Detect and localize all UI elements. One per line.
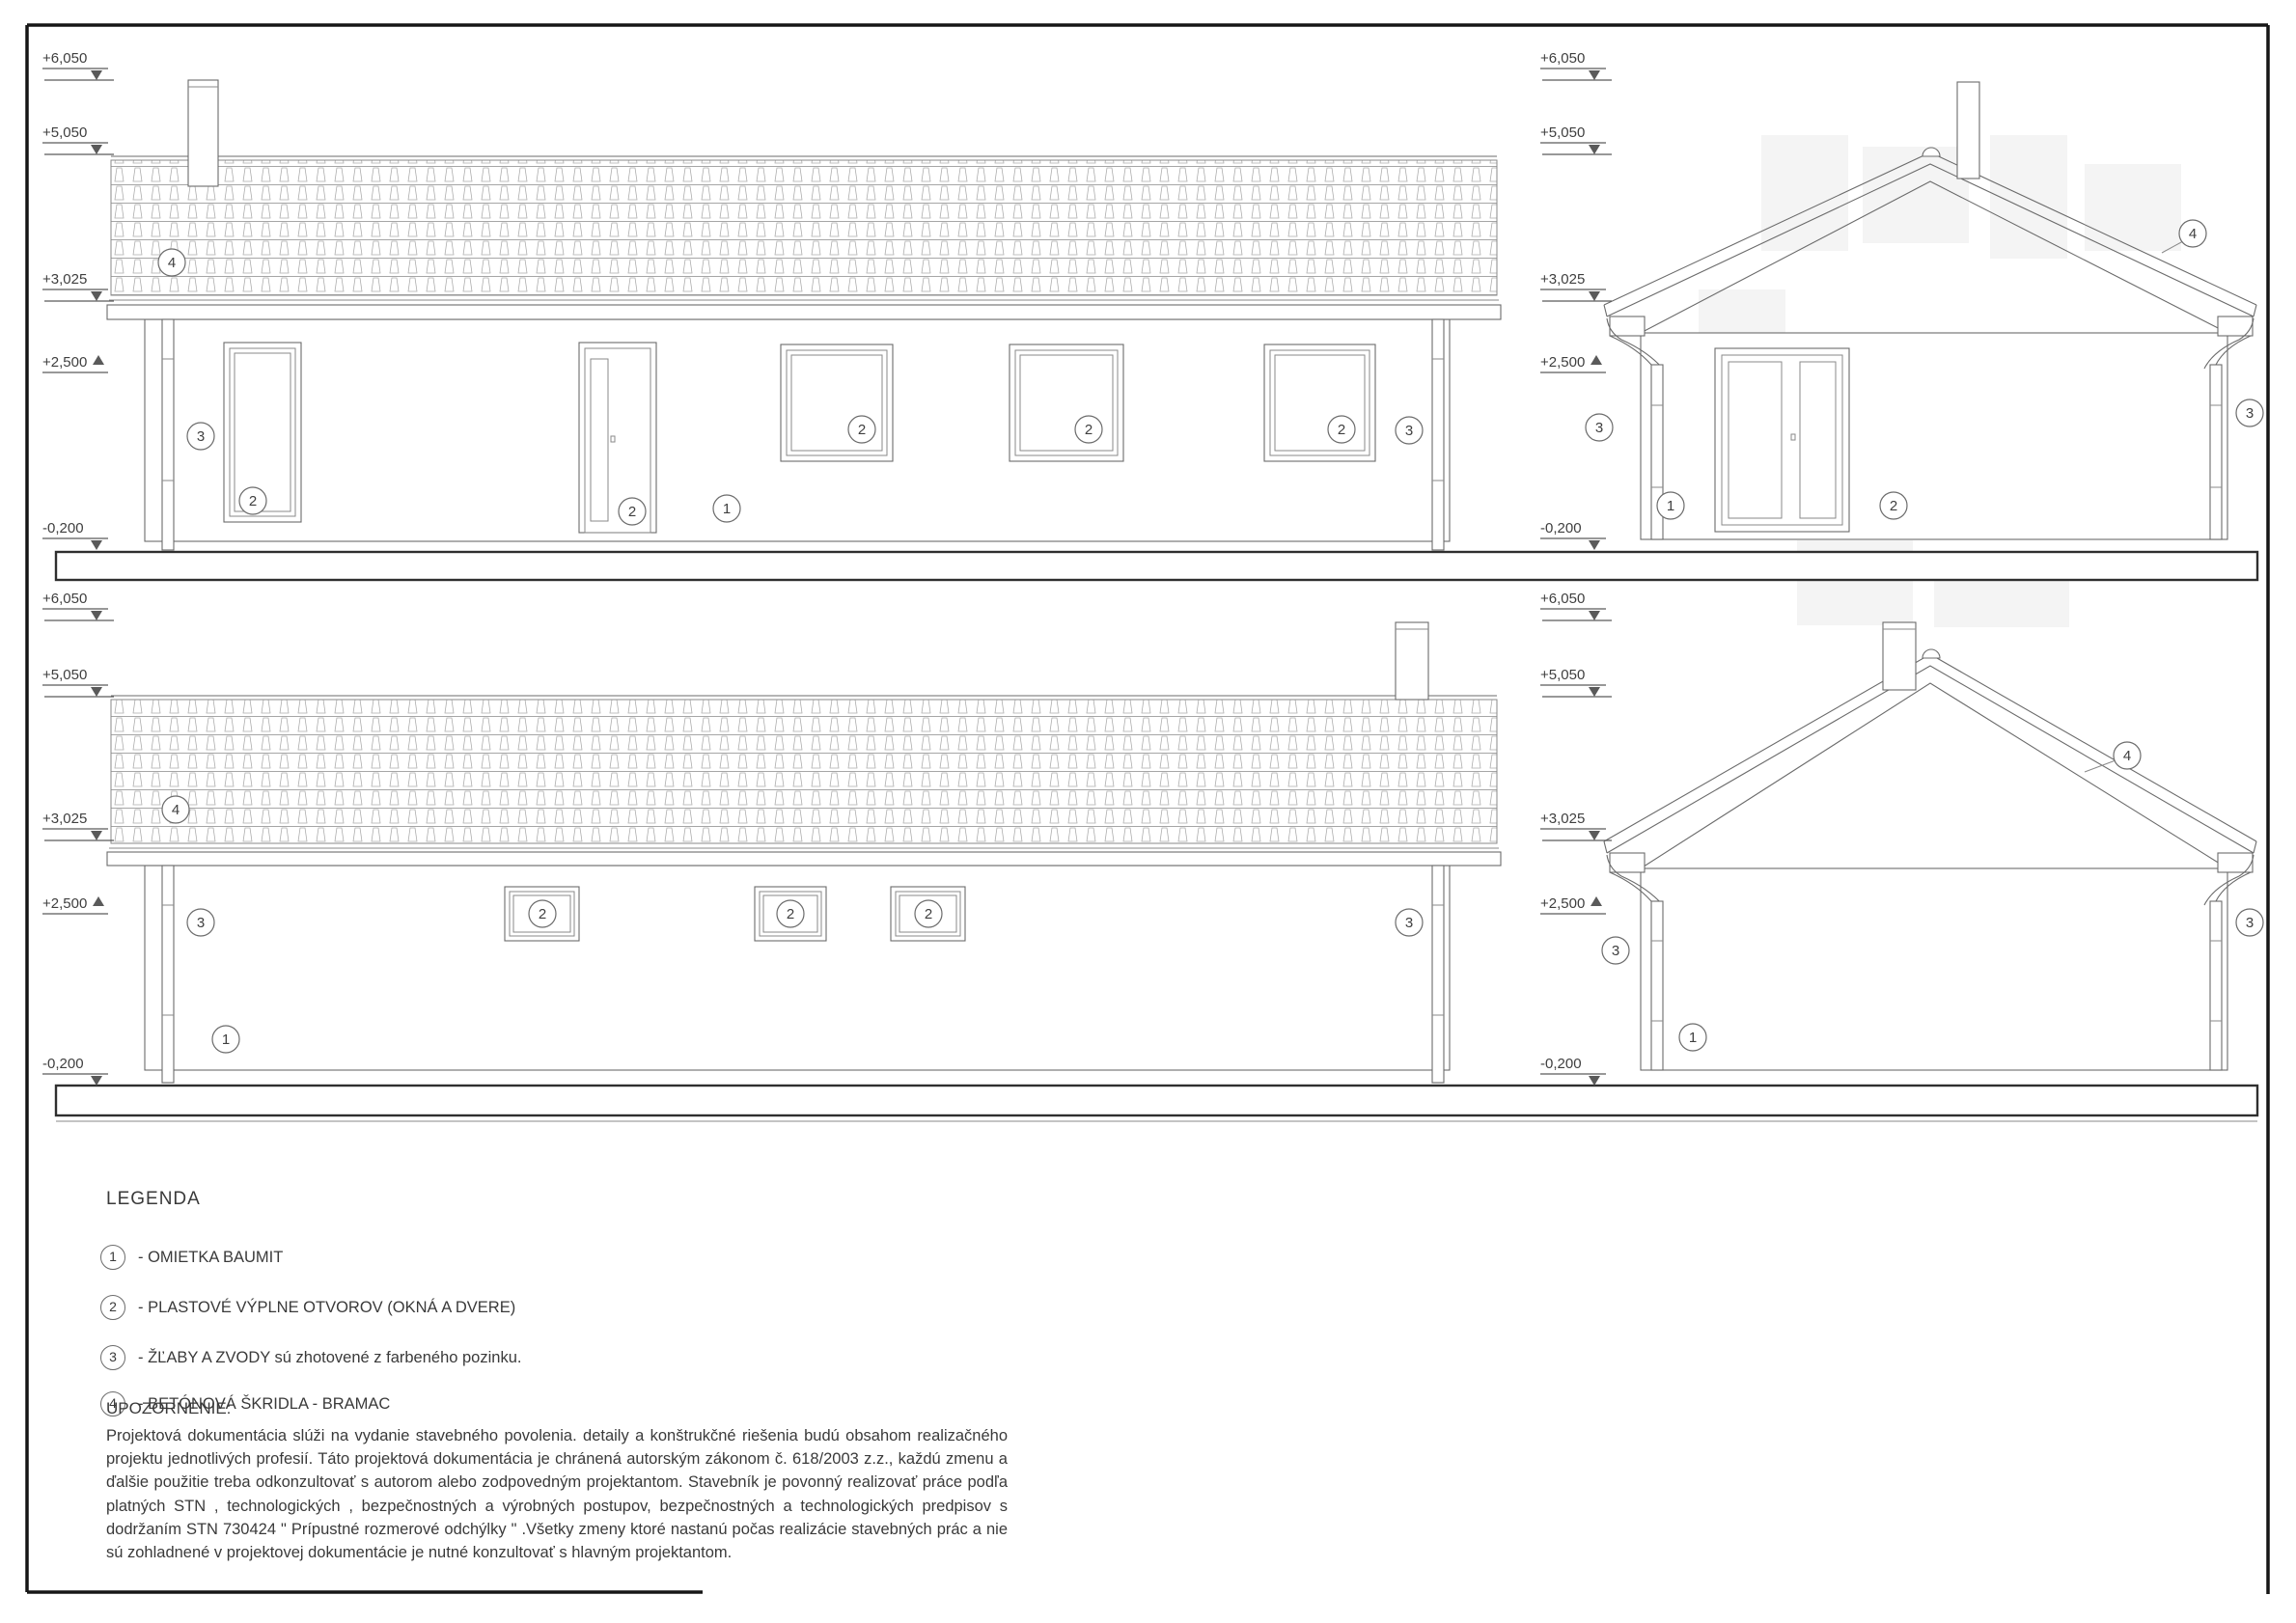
level-mark: +3,025 <box>1540 271 1612 301</box>
level-mark: -0,200 <box>42 1056 108 1086</box>
marker-roof-tiles: 4 <box>2114 742 2141 769</box>
level-mark: +5,050 <box>42 667 114 697</box>
marker-gutter: 3 <box>2236 909 2263 936</box>
marker-roof-tiles: 4 <box>162 796 189 823</box>
marker-plaster: 1 <box>713 495 740 522</box>
roof <box>107 156 1501 319</box>
marker-window: 2 <box>239 487 266 514</box>
level-mark: -0,200 <box>42 520 108 550</box>
svg-text:1: 1 <box>723 501 731 517</box>
legend-item-label: - OMIETKA BAUMIT <box>138 1249 283 1267</box>
level-mark: +3,025 <box>42 811 114 840</box>
level-mark: +6,050 <box>42 50 114 80</box>
downpipe-left <box>162 866 174 1083</box>
marker-plaster: 1 <box>1679 1024 1706 1051</box>
svg-text:4: 4 <box>2123 748 2131 764</box>
svg-text:1: 1 <box>1667 498 1674 514</box>
level-mark: +5,050 <box>42 124 114 154</box>
level-mark: +2,500 <box>42 895 108 914</box>
svg-text:2: 2 <box>787 906 794 922</box>
svg-text:2: 2 <box>539 906 546 922</box>
level-mark: +6,050 <box>1540 591 1612 620</box>
svg-text:+5,050: +5,050 <box>42 667 87 683</box>
svg-text:1: 1 <box>222 1032 230 1048</box>
marker-plaster: 1 <box>212 1026 239 1053</box>
legend-marker-3: 3 <box>100 1345 125 1370</box>
svg-text:+6,050: +6,050 <box>1540 591 1585 607</box>
downpipe-left <box>162 319 174 550</box>
level-mark: +2,500 <box>1540 895 1606 914</box>
wall <box>1641 868 2227 1070</box>
marker-gutter: 3 <box>1396 909 1423 936</box>
drawing-sheet: +6,050 +5,050 +3,025 +2,500 -0,200 +6,05… <box>0 0 2296 1623</box>
gable-roof <box>1604 649 2256 872</box>
chimney <box>188 80 218 186</box>
svg-text:+5,050: +5,050 <box>1540 667 1585 683</box>
marker-window: 2 <box>1880 492 1907 519</box>
svg-text:4: 4 <box>168 255 176 271</box>
svg-text:3: 3 <box>197 428 205 445</box>
terrace-door-window <box>1715 348 1849 532</box>
legend-marker-1: 1 <box>100 1245 125 1270</box>
chimney <box>1957 82 1979 179</box>
level-mark: -0,200 <box>1540 520 1606 550</box>
svg-text:2: 2 <box>1338 422 1345 438</box>
legend-item: 2 - PLASTOVÉ VÝPLNE OTVOROV (OKNÁ A DVER… <box>100 1295 515 1320</box>
svg-text:+3,025: +3,025 <box>1540 271 1585 288</box>
marker-window: 2 <box>529 900 556 927</box>
marker-window: 2 <box>619 498 646 525</box>
svg-text:3: 3 <box>1595 420 1603 436</box>
roof <box>107 696 1501 866</box>
downpipe-right <box>1432 866 1444 1083</box>
window <box>1264 344 1375 461</box>
level-mark: +5,050 <box>1540 124 1612 154</box>
window <box>781 344 893 461</box>
svg-text:2: 2 <box>628 504 636 520</box>
legend-item-label: - PLASTOVÉ VÝPLNE OTVOROV (OKNÁ A DVERE) <box>138 1299 515 1317</box>
svg-text:+6,050: +6,050 <box>1540 50 1585 67</box>
svg-text:2: 2 <box>925 906 932 922</box>
svg-text:3: 3 <box>1405 915 1413 931</box>
level-mark: +3,025 <box>1540 811 1612 840</box>
svg-text:4: 4 <box>172 802 180 818</box>
marker-window: 2 <box>1075 416 1102 443</box>
marker-gutter: 3 <box>1586 414 1613 441</box>
svg-text:+5,050: +5,050 <box>1540 124 1585 141</box>
svg-text:1: 1 <box>1689 1030 1697 1046</box>
svg-text:+2,500: +2,500 <box>42 354 87 371</box>
legend-title: LEGENDA <box>106 1189 201 1210</box>
notice-body: Projektová dokumentácia slúži na vydanie… <box>106 1424 1008 1564</box>
ground-slab <box>56 552 2257 580</box>
level-mark: +6,050 <box>1540 50 1612 80</box>
downpipe-right <box>1432 319 1444 550</box>
marker-gutter: 3 <box>187 909 214 936</box>
svg-text:2: 2 <box>858 422 866 438</box>
svg-text:4: 4 <box>2189 226 2197 242</box>
level-mark: +5,050 <box>1540 667 1612 697</box>
level-mark: +6,050 <box>42 591 114 620</box>
svg-text:+2,500: +2,500 <box>1540 895 1585 912</box>
svg-text:3: 3 <box>2246 405 2254 422</box>
marker-plaster: 1 <box>1657 492 1684 519</box>
legend-item-label: - ŽĽABY A ZVODY sú zhotovené z farbeného… <box>138 1349 521 1367</box>
marker-gutter: 3 <box>1602 937 1629 964</box>
marker-window: 2 <box>915 900 942 927</box>
svg-text:-0,200: -0,200 <box>42 1056 84 1072</box>
level-mark: +2,500 <box>1540 354 1606 372</box>
svg-text:+2,500: +2,500 <box>42 895 87 912</box>
svg-text:+3,025: +3,025 <box>42 811 87 827</box>
level-mark: -0,200 <box>1540 1056 1606 1086</box>
gable-elevation-b <box>1604 622 2256 1070</box>
marker-window: 2 <box>1328 416 1355 443</box>
marker-gutter: 3 <box>1396 417 1423 444</box>
level-mark: +3,025 <box>42 271 114 301</box>
svg-text:+6,050: +6,050 <box>42 591 87 607</box>
svg-text:2: 2 <box>1890 498 1897 514</box>
svg-text:-0,200: -0,200 <box>1540 520 1582 536</box>
window <box>1010 344 1123 461</box>
marker-window: 2 <box>848 416 875 443</box>
svg-text:3: 3 <box>1405 423 1413 439</box>
ground-slab <box>56 1086 2257 1115</box>
svg-text:+3,025: +3,025 <box>1540 811 1585 827</box>
svg-text:+3,025: +3,025 <box>42 271 87 288</box>
svg-text:+2,500: +2,500 <box>1540 354 1585 371</box>
svg-text:-0,200: -0,200 <box>1540 1056 1582 1072</box>
notice-title: UPOZORNENIE: <box>106 1399 231 1418</box>
elevations-drawing: +6,050 +5,050 +3,025 +2,500 -0,200 +6,05… <box>0 0 2296 1623</box>
marker-gutter: 3 <box>187 423 214 450</box>
chimney <box>1396 622 1428 700</box>
legend-marker-2: 2 <box>100 1295 125 1320</box>
svg-text:2: 2 <box>249 493 257 509</box>
svg-text:+6,050: +6,050 <box>42 50 87 67</box>
marker-roof-tiles: 4 <box>2179 220 2206 247</box>
level-mark: +2,500 <box>42 354 108 372</box>
svg-text:-0,200: -0,200 <box>42 520 84 536</box>
svg-text:3: 3 <box>2246 915 2254 931</box>
svg-text:2: 2 <box>1085 422 1093 438</box>
chimney <box>1883 622 1916 690</box>
marker-gutter: 3 <box>2236 399 2263 426</box>
svg-text:3: 3 <box>1612 943 1619 959</box>
marker-window: 2 <box>777 900 804 927</box>
marker-roof-tiles: 4 <box>158 249 185 276</box>
svg-text:3: 3 <box>197 915 205 931</box>
svg-text:+5,050: +5,050 <box>42 124 87 141</box>
legend-item: 1 - OMIETKA BAUMIT <box>100 1245 283 1270</box>
entrance-door <box>579 343 656 533</box>
legend-item: 3 - ŽĽABY A ZVODY sú zhotovené z farbené… <box>100 1345 521 1370</box>
